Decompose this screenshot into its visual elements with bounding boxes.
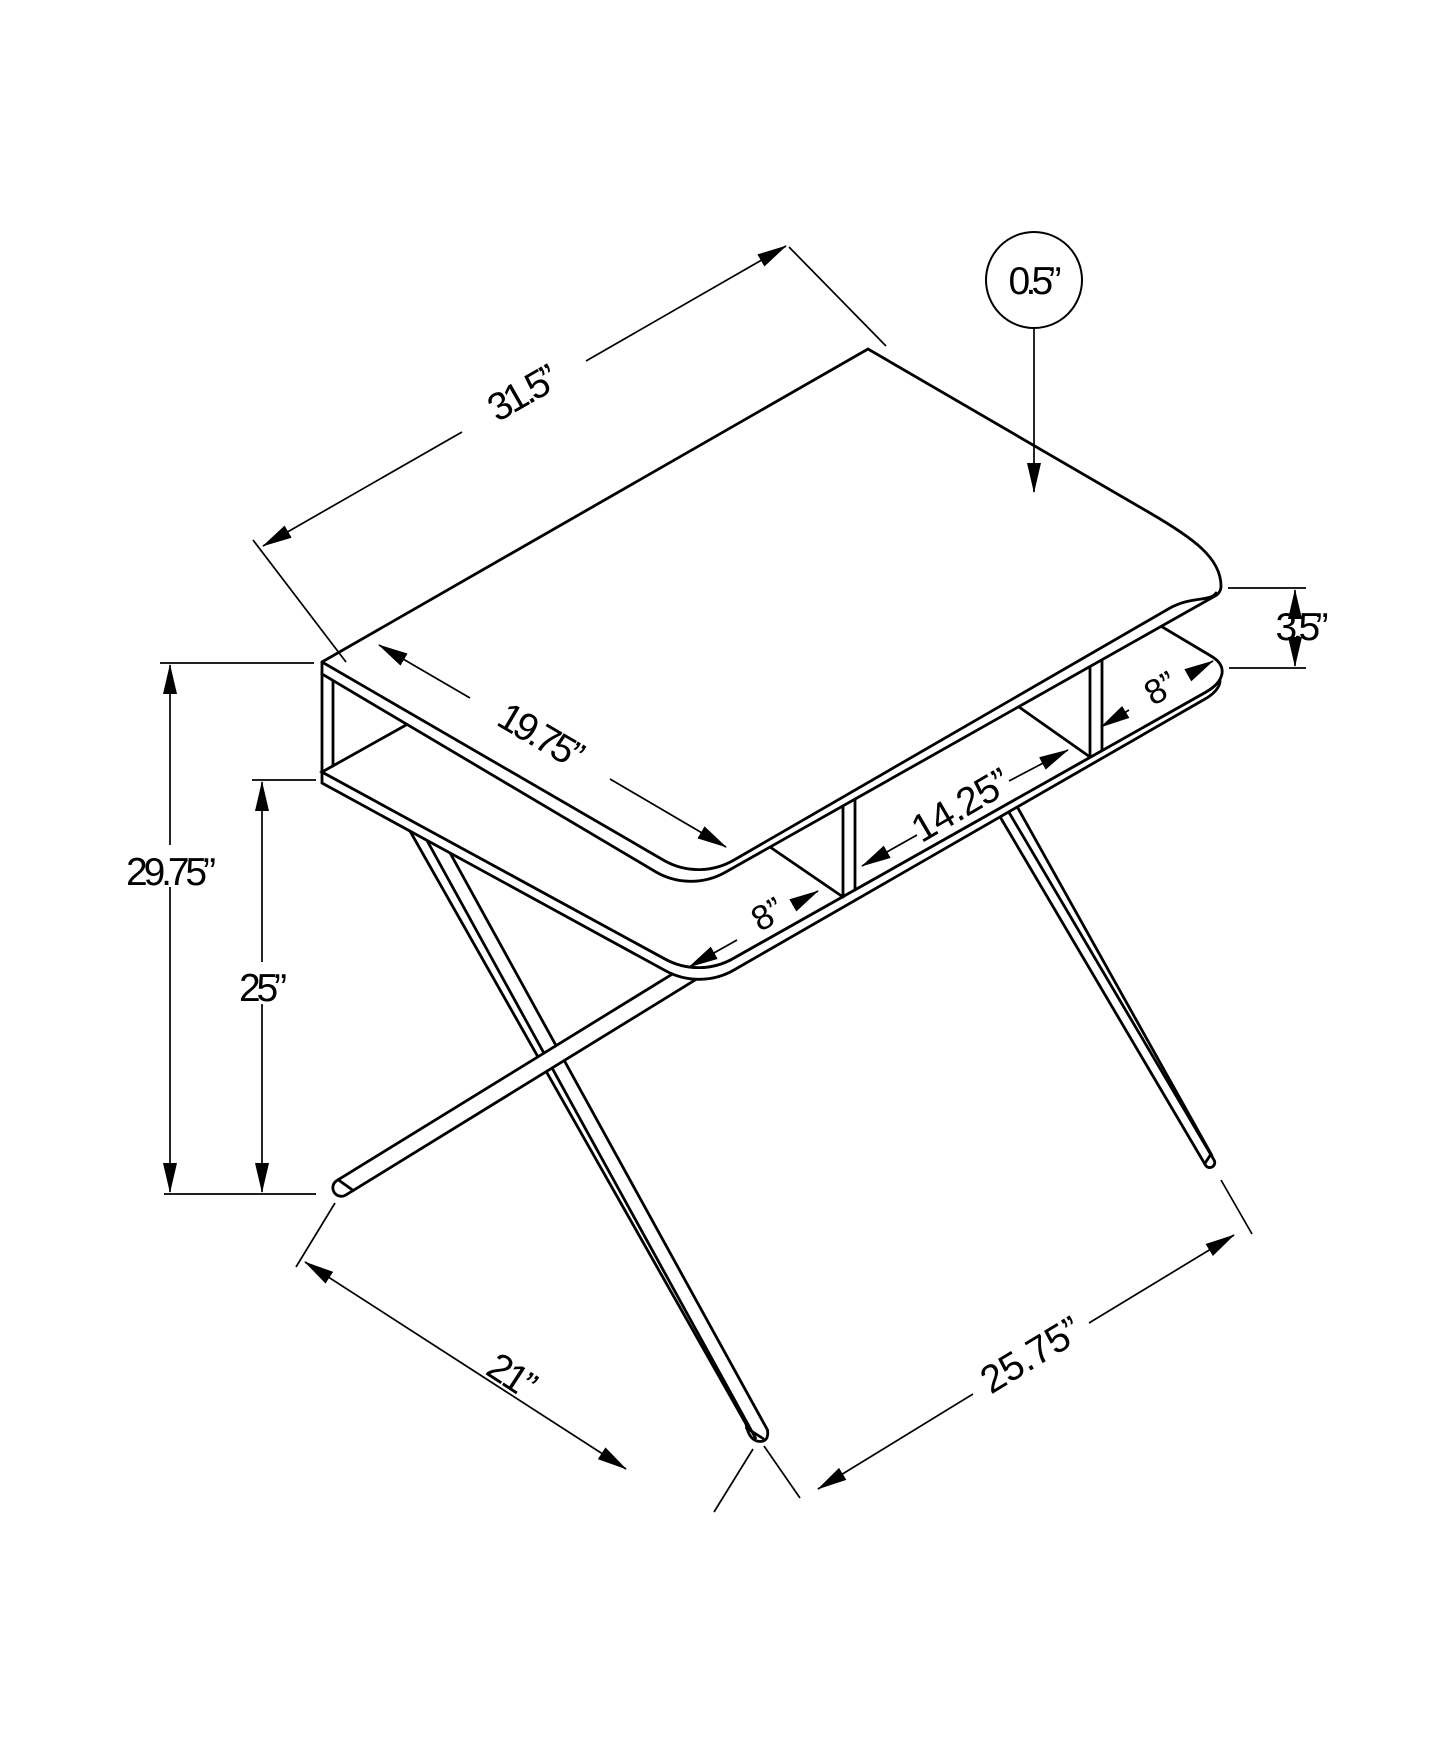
svg-text:25”: 25” xyxy=(239,967,287,1010)
svg-text:3.5”: 3.5” xyxy=(1276,606,1329,649)
svg-text:29.75”: 29.75” xyxy=(126,851,216,894)
svg-text:0.5”: 0.5” xyxy=(1009,260,1062,303)
